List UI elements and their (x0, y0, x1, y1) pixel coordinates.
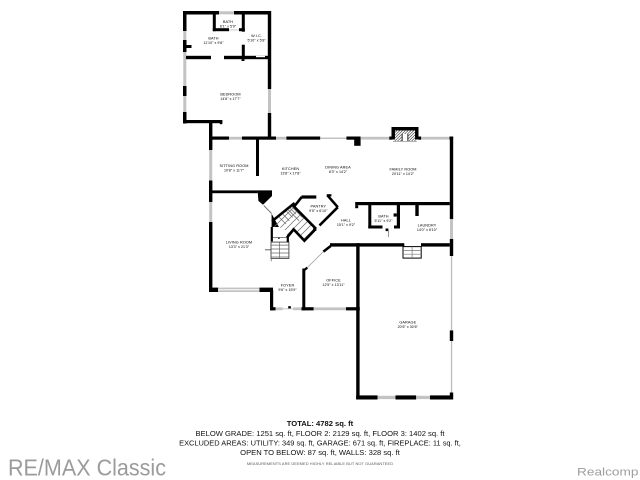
svg-text:12'5" x 13'11": 12'5" x 13'11" (322, 283, 345, 287)
svg-text:DINING AREA: DINING AREA (325, 165, 351, 169)
svg-text:BATH: BATH (208, 37, 218, 41)
svg-text:LIVING ROOM: LIVING ROOM (226, 240, 252, 244)
svg-text:9'5" x 6'10": 9'5" x 6'10" (309, 209, 328, 213)
svg-text:5'11" x 9'2": 5'11" x 9'2" (374, 219, 393, 223)
svg-text:OFFICE: OFFICE (326, 278, 341, 282)
svg-text:6'1" x 5'9": 6'1" x 5'9" (220, 24, 237, 28)
svg-text:13'8" x 17'8": 13'8" x 17'8" (280, 171, 301, 175)
svg-text:GARAGE: GARAGE (399, 320, 416, 324)
svg-text:OPEN TO BELOW: 87 sq. ft, WALL: OPEN TO BELOW: 87 sq. ft, WALLS: 328 sq.… (240, 448, 401, 457)
svg-text:5'10" x 5'8": 5'10" x 5'8" (247, 38, 266, 42)
svg-text:11'10" x 9'8": 11'10" x 9'8" (203, 41, 224, 45)
svg-text:RE/MAX Classic: RE/MAX Classic (8, 455, 166, 480)
svg-text:13'3" x 21'3": 13'3" x 21'3" (229, 245, 250, 249)
svg-text:BELOW GRADE: 1251 sq. ft, FLOO: BELOW GRADE: 1251 sq. ft, FLOOR 2: 2129 … (195, 429, 445, 438)
svg-text:EXCLUDED AREAS: UTILITY: 349 s: EXCLUDED AREAS: UTILITY: 349 sq. ft, GAR… (179, 439, 461, 448)
svg-text:Realcomp: Realcomp (577, 467, 639, 479)
svg-text:BEDROOM: BEDROOM (220, 93, 240, 97)
svg-text:HALL: HALL (341, 218, 351, 222)
svg-text:20'6" x 30'6": 20'6" x 30'6" (398, 325, 419, 329)
svg-text:9'6" x 15'9": 9'6" x 15'9" (278, 288, 297, 292)
svg-text:BATH: BATH (378, 214, 388, 218)
svg-text:TOTAL: 4782 sq. ft: TOTAL: 4782 sq. ft (287, 419, 354, 428)
svg-text:FOYER: FOYER (281, 283, 295, 287)
svg-text:8'3" x 14'2": 8'3" x 14'2" (329, 170, 348, 174)
svg-text:FAMILY ROOM: FAMILY ROOM (389, 167, 416, 171)
svg-text:PANTRY: PANTRY (310, 204, 326, 208)
svg-text:LAUNDRY: LAUNDRY (418, 223, 437, 227)
svg-text:15'1" x 9'2": 15'1" x 9'2" (337, 223, 356, 227)
svg-text:KITCHEN: KITCHEN (282, 167, 300, 171)
svg-text:20'11" x 14'2": 20'11" x 14'2" (392, 172, 415, 176)
svg-text:14'0" x 8'10": 14'0" x 8'10" (417, 228, 438, 232)
svg-text:MEASUREMENTS ARE DEEMED HIGHLY: MEASUREMENTS ARE DEEMED HIGHLY RELIABLE … (247, 461, 393, 466)
svg-text:SITTING ROOM: SITTING ROOM (219, 164, 248, 168)
svg-text:14'8" x 17'7": 14'8" x 17'7" (220, 97, 241, 101)
svg-text:10'8" x 11'7": 10'8" x 11'7" (224, 168, 245, 172)
